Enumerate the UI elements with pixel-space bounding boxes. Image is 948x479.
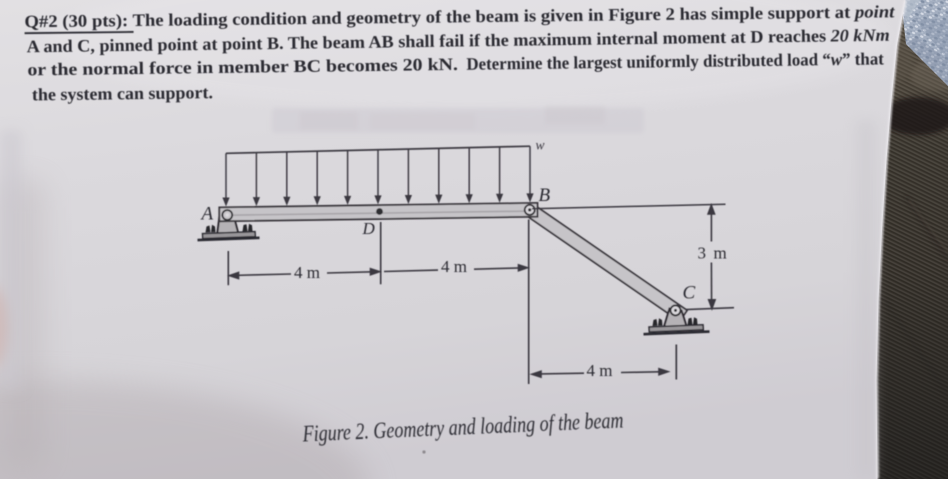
svg-text:D: D: [362, 219, 376, 238]
svg-text:4 m: 4 m: [587, 361, 613, 380]
svg-text:A: A: [200, 204, 214, 225]
svg-text:4 m: 4 m: [441, 257, 467, 276]
svg-text:w: w: [536, 138, 545, 153]
svg-text:C: C: [683, 283, 696, 304]
svg-text:B: B: [539, 185, 551, 206]
svg-text:the system can support.: the system can support.: [32, 82, 213, 104]
svg-text:4 m: 4 m: [294, 263, 320, 282]
